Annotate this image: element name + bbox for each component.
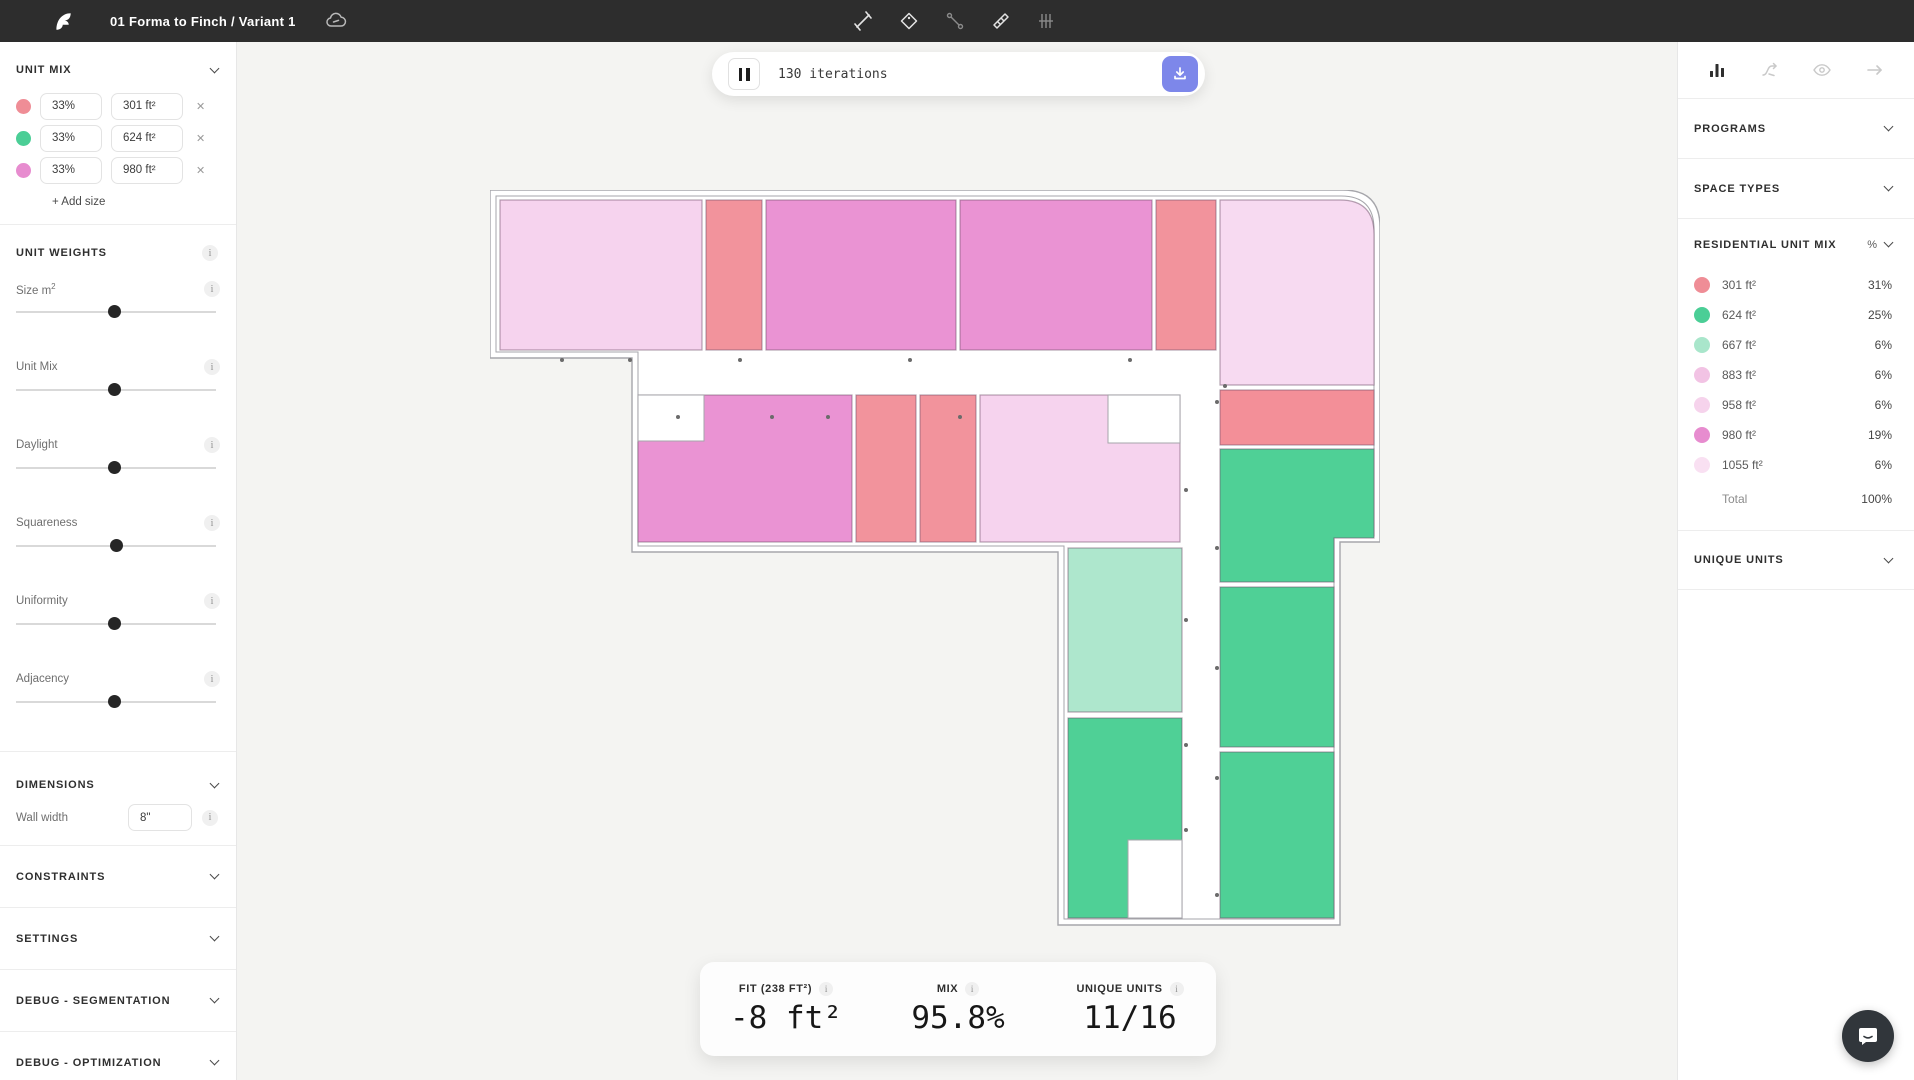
- unit-color-dot: [1694, 397, 1710, 413]
- legend-size-label: 958 ft²: [1722, 398, 1863, 412]
- legend-size-label: 883 ft²: [1722, 368, 1863, 382]
- pause-button[interactable]: [728, 58, 760, 90]
- unit-salmon[interactable]: [1220, 390, 1374, 445]
- section-title: DEBUG - OPTIMIZATION: [16, 1057, 162, 1069]
- left-sidebar: UNIT MIX + Add size UNIT WEIGHTS Size m2…: [0, 42, 237, 1080]
- info-icon[interactable]: [965, 982, 979, 996]
- slider-track[interactable]: [16, 689, 216, 715]
- unit-color-dot: [1694, 367, 1710, 383]
- chevron-down-icon[interactable]: [1884, 238, 1894, 248]
- fit-label: FIT (238 FT²): [739, 983, 812, 995]
- unit-size-input[interactable]: [111, 157, 183, 184]
- dimension-marker: [1128, 358, 1132, 362]
- finch-logo-icon[interactable]: [50, 8, 76, 34]
- divider: [0, 224, 236, 225]
- chevron-down-icon[interactable]: [210, 1056, 220, 1066]
- legend-row: 624 ft²25%: [1678, 300, 1914, 330]
- tag-tool-icon[interactable]: [898, 10, 920, 32]
- floorplan-void: [1108, 395, 1180, 443]
- unit-mix-rows: [0, 82, 236, 186]
- slider-handle[interactable]: [108, 617, 121, 630]
- unit-mint[interactable]: [1068, 548, 1182, 712]
- legend-pct-value: 25%: [1868, 308, 1892, 322]
- flow-icon[interactable]: [1759, 59, 1781, 81]
- legend-size-label: 624 ft²: [1722, 308, 1856, 322]
- unit-color-dot: [1694, 307, 1710, 323]
- fit-value: -8 ft²: [730, 1000, 842, 1036]
- legend-row: 1055 ft²6%: [1678, 450, 1914, 480]
- unique-units-stat: UNIQUE UNITS 11/16: [1044, 962, 1216, 1056]
- mix-value: 95.8%: [911, 1000, 1004, 1036]
- node-link-tool-icon[interactable]: [944, 10, 966, 32]
- wall-width-input[interactable]: [128, 804, 192, 831]
- dimension-marker: [738, 358, 742, 362]
- legend-pct-value: 6%: [1875, 368, 1892, 382]
- unit-mix-title: UNIT MIX: [16, 64, 71, 76]
- dimension-marker: [628, 358, 632, 362]
- unit-size-input[interactable]: [111, 125, 183, 152]
- canvas-toolbar: [852, 0, 1058, 42]
- weight-slider-group: Uniformity: [0, 591, 236, 655]
- residential-unit-mix-header[interactable]: RESIDENTIAL UNIT MIX %: [1678, 218, 1914, 270]
- bar-chart-icon[interactable]: [1706, 59, 1728, 81]
- sidebar-section-constraints[interactable]: CONSTRAINTS: [0, 845, 236, 907]
- slider-label: Unit Mix: [16, 361, 58, 373]
- legend-pct-value: 19%: [1868, 428, 1892, 442]
- unit-pct-input[interactable]: [40, 125, 102, 152]
- chevron-down-icon[interactable]: [210, 932, 220, 942]
- chevron-down-icon[interactable]: [1884, 122, 1894, 132]
- legend-size-label: 667 ft²: [1722, 338, 1863, 352]
- unit-salmon[interactable]: [920, 395, 976, 542]
- legend-size-label: 301 ft²: [1722, 278, 1856, 292]
- legend-row: 667 ft²6%: [1678, 330, 1914, 360]
- unit-mix-header[interactable]: UNIT MIX: [0, 58, 236, 82]
- arrow-right-icon[interactable]: [1864, 59, 1886, 81]
- chat-icon: [1855, 1023, 1881, 1049]
- collapsed-sections: CONSTRAINTSSETTINGSDEBUG - SEGMENTATIOND…: [0, 845, 236, 1080]
- dimension-marker: [560, 358, 564, 362]
- weight-slider-group: Unit Mix: [0, 357, 236, 421]
- slider-handle[interactable]: [110, 539, 123, 552]
- unique-units-title: UNIQUE UNITS: [1694, 554, 1784, 566]
- section-title: CONSTRAINTS: [16, 871, 105, 883]
- slider-label: Daylight: [16, 439, 58, 451]
- unique-units-section[interactable]: UNIQUE UNITS: [1678, 530, 1914, 590]
- unit-color-dot: [1694, 277, 1710, 293]
- chat-launcher-button[interactable]: [1842, 1010, 1894, 1062]
- space-types-section[interactable]: SPACE TYPES: [1678, 158, 1914, 218]
- unit-green[interactable]: [1220, 752, 1334, 918]
- dimension-marker: [676, 415, 680, 419]
- wall-width-label: Wall width: [16, 812, 118, 824]
- stats-card: FIT (238 FT²) -8 ft² MIX 95.8% UNIQUE UN…: [700, 962, 1216, 1056]
- iterations-count: 130 iterations: [778, 67, 1162, 82]
- unit-mix-row: [0, 154, 236, 186]
- unit-salmon[interactable]: [706, 200, 762, 350]
- dimensions-title: DIMENSIONS: [16, 779, 95, 791]
- dimension-marker: [770, 415, 774, 419]
- info-icon[interactable]: [204, 281, 220, 297]
- slider-label: Uniformity: [16, 595, 68, 607]
- info-icon[interactable]: [819, 982, 833, 996]
- dimension-marker: [1184, 488, 1188, 492]
- unique-units-label: UNIQUE UNITS: [1076, 983, 1162, 995]
- weight-slider-group: Adjacency: [0, 669, 236, 733]
- unit-size-input[interactable]: [111, 93, 183, 120]
- residential-unit-mix-rows: 301 ft²31%624 ft²25%667 ft²6%883 ft²6%95…: [1678, 270, 1914, 480]
- info-icon[interactable]: [204, 593, 220, 609]
- slider-handle[interactable]: [108, 461, 121, 474]
- slider-track[interactable]: [16, 533, 216, 559]
- dimension-marker: [826, 415, 830, 419]
- programs-title: PROGRAMS: [1694, 123, 1766, 135]
- dimension-marker: [1184, 618, 1188, 622]
- slider-label: Squareness: [16, 517, 77, 529]
- info-icon[interactable]: [204, 671, 220, 687]
- total-row: Total 100%: [1678, 480, 1914, 518]
- weight-slider-group: Daylight: [0, 435, 236, 499]
- info-icon[interactable]: [204, 359, 220, 375]
- measure-tool-icon[interactable]: [852, 10, 874, 32]
- add-size-button[interactable]: + Add size: [0, 186, 236, 210]
- legend-pct-value: 6%: [1875, 458, 1892, 472]
- slider-handle[interactable]: [108, 695, 121, 708]
- dimension-marker: [1184, 743, 1188, 747]
- section-title: SETTINGS: [16, 933, 78, 945]
- unit-orchid[interactable]: [960, 200, 1152, 350]
- right-sidebar: PROGRAMS SPACE TYPES RESIDENTIAL UNIT MI…: [1677, 42, 1914, 1080]
- mix-label: MIX: [937, 983, 958, 995]
- dimension-marker: [1215, 776, 1219, 780]
- wall-width-row: Wall width: [0, 798, 236, 845]
- right-panel-tabs: [1678, 42, 1914, 98]
- dimension-marker: [958, 415, 962, 419]
- floorplan-void: [1128, 840, 1182, 918]
- legend-pct-value: 6%: [1875, 398, 1892, 412]
- fit-stat: FIT (238 FT²) -8 ft²: [700, 962, 872, 1056]
- hatch-tool-icon[interactable]: [990, 10, 1012, 32]
- slider-track[interactable]: [16, 299, 216, 325]
- chevron-down-icon[interactable]: [1884, 553, 1894, 563]
- floorplan-void: [638, 395, 704, 441]
- unit-salmon[interactable]: [1156, 200, 1216, 350]
- slider-label: Adjacency: [16, 673, 69, 685]
- unit-pct-input[interactable]: [40, 93, 102, 120]
- total-label: Total: [1722, 492, 1861, 506]
- dimensions-header[interactable]: DIMENSIONS: [0, 752, 236, 798]
- remove-unit-button[interactable]: [196, 100, 205, 113]
- info-icon[interactable]: [204, 437, 220, 453]
- total-value: 100%: [1861, 492, 1892, 506]
- info-icon[interactable]: [202, 245, 218, 261]
- slider-track[interactable]: [16, 455, 216, 481]
- unit-color-dot: [16, 163, 31, 178]
- dimension-marker: [1215, 666, 1219, 670]
- remove-unit-button[interactable]: [196, 132, 205, 145]
- app-header: 01 Forma to Finch / Variant 1: [0, 0, 1914, 42]
- legend-row: 958 ft²6%: [1678, 390, 1914, 420]
- unit-salmon[interactable]: [856, 395, 916, 542]
- programs-section[interactable]: PROGRAMS: [1678, 98, 1914, 158]
- sidebar-section-debug-segmentation[interactable]: DEBUG - SEGMENTATION: [0, 969, 236, 1031]
- sidebar-section-settings[interactable]: SETTINGS: [0, 907, 236, 969]
- download-icon: [1171, 65, 1189, 83]
- mix-stat: MIX 95.8%: [872, 962, 1044, 1056]
- unit-color-dot: [1694, 427, 1710, 443]
- unique-units-value: 11/16: [1083, 1000, 1176, 1036]
- pause-icon: [746, 68, 750, 81]
- download-button[interactable]: [1162, 56, 1198, 92]
- legend-pct-value: 6%: [1875, 338, 1892, 352]
- unit-lightpink[interactable]: [500, 200, 702, 350]
- pause-icon: [739, 68, 743, 81]
- unit-color-dot: [16, 99, 31, 114]
- chevron-down-icon[interactable]: [1884, 182, 1894, 192]
- unit-mix-row: [0, 90, 236, 122]
- eye-icon[interactable]: [1811, 59, 1833, 81]
- dimension-marker: [1184, 828, 1188, 832]
- unit-color-dot: [1694, 457, 1710, 473]
- legend-size-label: 1055 ft²: [1722, 458, 1863, 472]
- unit-green[interactable]: [1220, 449, 1374, 582]
- cloud-sync-icon[interactable]: [324, 9, 348, 33]
- floorplan-svg[interactable]: [490, 190, 1380, 930]
- unit-color-dot: [1694, 337, 1710, 353]
- section-title: DEBUG - SEGMENTATION: [16, 995, 170, 1007]
- legend-pct-value: 31%: [1868, 278, 1892, 292]
- unit-green[interactable]: [1220, 587, 1334, 747]
- slider-track[interactable]: [16, 611, 216, 637]
- unit-weights-sliders: Size m2Unit MixDaylightSquarenessUniform…: [0, 279, 236, 733]
- info-icon[interactable]: [202, 810, 218, 826]
- space-types-title: SPACE TYPES: [1694, 183, 1780, 195]
- legend-size-label: 980 ft²: [1722, 428, 1856, 442]
- unit-lightpink[interactable]: [1220, 200, 1374, 385]
- info-icon[interactable]: [204, 515, 220, 531]
- sidebar-section-debug-optimization[interactable]: DEBUG - OPTIMIZATION: [0, 1031, 236, 1080]
- info-icon[interactable]: [1170, 982, 1184, 996]
- residential-unit-mix-title: RESIDENTIAL UNIT MIX: [1694, 239, 1836, 251]
- slider-handle[interactable]: [108, 383, 121, 396]
- unit-pct-input[interactable]: [40, 157, 102, 184]
- document-title[interactable]: 01 Forma to Finch / Variant 1: [110, 14, 296, 29]
- dimension-marker: [908, 358, 912, 362]
- dimension-marker: [1215, 546, 1219, 550]
- slider-handle[interactable]: [108, 305, 121, 318]
- dimension-marker: [1215, 893, 1219, 897]
- chevron-down-icon[interactable]: [210, 994, 220, 1004]
- unit-mix-row: [0, 122, 236, 154]
- unit-color-dot: [16, 131, 31, 146]
- chevron-down-icon[interactable]: [210, 63, 220, 73]
- rail-tool-icon[interactable]: [1036, 10, 1058, 32]
- unit-orchid[interactable]: [766, 200, 956, 350]
- unit-weights-header: UNIT WEIGHTS: [0, 241, 236, 265]
- legend-row: 980 ft²19%: [1678, 420, 1914, 450]
- iterations-bar: 130 iterations: [712, 52, 1205, 96]
- legend-row: 883 ft²6%: [1678, 360, 1914, 390]
- remove-unit-button[interactable]: [196, 164, 205, 177]
- weight-slider-group: Size m2: [0, 279, 236, 343]
- dimension-marker: [1223, 384, 1227, 388]
- unit-mode-label[interactable]: %: [1867, 239, 1877, 251]
- slider-label: Size m2: [16, 282, 56, 297]
- slider-track[interactable]: [16, 377, 216, 403]
- unit-weights-title: UNIT WEIGHTS: [16, 247, 107, 259]
- chevron-down-icon[interactable]: [210, 778, 220, 788]
- chevron-down-icon[interactable]: [210, 870, 220, 880]
- dimension-marker: [1215, 400, 1219, 404]
- legend-row: 301 ft²31%: [1678, 270, 1914, 300]
- weight-slider-group: Squareness: [0, 513, 236, 577]
